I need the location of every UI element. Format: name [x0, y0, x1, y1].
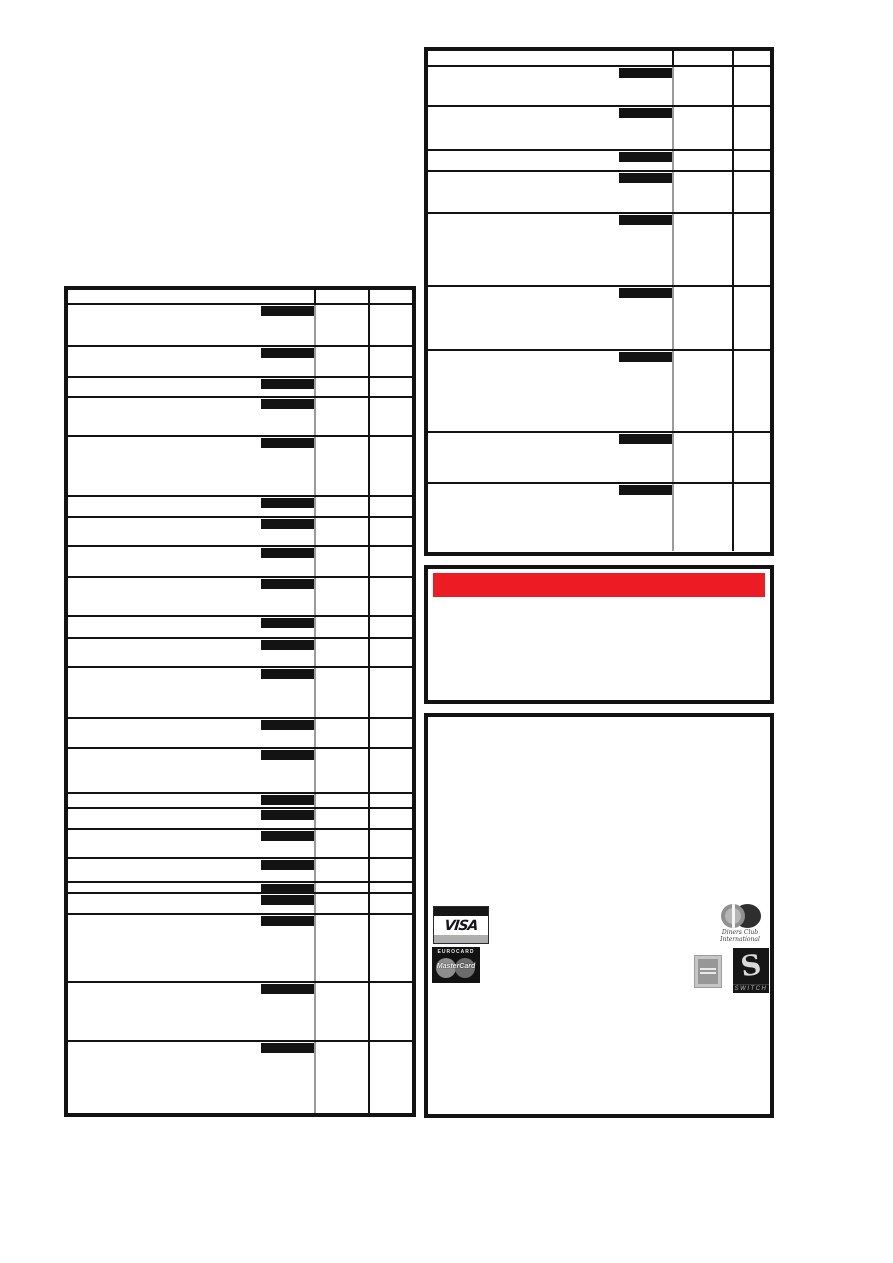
redacted-text-bar — [261, 348, 314, 358]
table-row — [68, 828, 412, 857]
payment-info-box: VISA EUROCARD MasterCard Diners Club Int… — [424, 713, 774, 1118]
table-cell — [370, 894, 412, 913]
table-cell — [370, 547, 412, 576]
redacted-text-bar — [261, 750, 314, 760]
table-cell — [316, 749, 370, 792]
table-cell — [674, 351, 734, 431]
table-cell — [370, 639, 412, 666]
document-page: VISA EUROCARD MasterCard Diners Club Int… — [0, 0, 893, 1263]
table-cell — [68, 290, 316, 303]
table-cell — [316, 883, 370, 892]
redacted-text-bar — [261, 618, 314, 628]
table-row — [68, 345, 412, 376]
table-cell — [68, 347, 316, 376]
table-cell — [316, 437, 370, 495]
table-cell — [316, 668, 370, 717]
table-row — [428, 482, 770, 551]
diners-club-icon — [719, 903, 761, 929]
table-cell — [370, 378, 412, 396]
notice-banner-bar — [433, 573, 765, 597]
table-row — [68, 792, 412, 807]
table-cell — [316, 983, 370, 1040]
redacted-text-bar — [619, 108, 672, 118]
table-cell — [370, 437, 412, 495]
table-cell — [370, 809, 412, 828]
table-cell — [316, 794, 370, 807]
table-cell — [370, 859, 412, 881]
redacted-text-bar — [261, 519, 314, 529]
redacted-text-bar — [261, 1043, 314, 1053]
switch-s-icon: S — [731, 946, 772, 987]
left-price-table — [64, 286, 416, 1117]
table-cell — [370, 915, 412, 981]
table-cell — [734, 172, 770, 212]
table-cell — [370, 1042, 412, 1114]
redacted-text-bar — [261, 720, 314, 730]
table-cell — [316, 1042, 370, 1114]
table-cell — [370, 518, 412, 545]
table-cell — [316, 859, 370, 881]
table-cell — [734, 484, 770, 551]
table-row — [68, 576, 412, 615]
american-express-logo — [694, 955, 722, 988]
table-row — [68, 807, 412, 828]
redacted-text-bar — [619, 288, 672, 298]
visa-top-band — [434, 907, 488, 916]
table-row — [428, 285, 770, 349]
visa-bottom-band — [434, 935, 488, 943]
table-cell — [370, 497, 412, 516]
table-cell — [316, 915, 370, 981]
table-cell — [734, 51, 770, 65]
eurocard-wordmark: EUROCARD — [432, 949, 480, 955]
table-cell — [370, 290, 412, 303]
redacted-text-bar — [261, 669, 314, 679]
redacted-text-bar — [261, 831, 314, 841]
table-row — [68, 881, 412, 892]
redacted-text-bar — [261, 399, 314, 409]
redacted-text-bar — [261, 579, 314, 589]
table-cell — [674, 67, 734, 105]
table-header-row — [68, 290, 412, 303]
table-cell — [68, 305, 316, 345]
table-cell — [316, 830, 370, 857]
table-cell — [674, 484, 734, 551]
table-cell — [370, 347, 412, 376]
table-cell — [316, 347, 370, 376]
table-row — [428, 349, 770, 431]
table-cell — [370, 794, 412, 807]
table-cell — [674, 151, 734, 170]
table-row — [428, 105, 770, 149]
diners-left-circle-icon — [721, 904, 745, 928]
redacted-text-bar — [619, 152, 672, 162]
table-cell — [370, 719, 412, 747]
switch-logo: S SWITCH — [733, 948, 769, 993]
table-cell — [370, 398, 412, 435]
table-cell — [316, 578, 370, 615]
visa-wordmark: VISA — [433, 916, 489, 935]
table-cell — [674, 433, 734, 482]
table-cell — [734, 351, 770, 431]
table-cell — [316, 547, 370, 576]
table-row — [68, 615, 412, 637]
redacted-text-bar — [619, 485, 672, 495]
table-cell — [428, 484, 674, 551]
table-cell — [68, 794, 316, 807]
redacted-text-bar — [619, 173, 672, 183]
table-row — [428, 149, 770, 170]
redacted-text-bar — [261, 795, 314, 805]
table-cell — [68, 518, 316, 545]
table-cell — [428, 287, 674, 349]
redacted-text-bar — [261, 498, 314, 508]
table-row — [68, 717, 412, 747]
table-cell — [68, 1042, 316, 1114]
table-cell — [68, 437, 316, 495]
table-cell — [68, 894, 316, 913]
table-row — [68, 396, 412, 435]
table-cell — [370, 668, 412, 717]
table-cell — [68, 915, 316, 981]
table-cell — [734, 151, 770, 170]
table-cell — [428, 433, 674, 482]
right-price-table — [424, 47, 774, 556]
table-row — [68, 892, 412, 913]
redacted-text-bar — [261, 548, 314, 558]
table-cell — [734, 287, 770, 349]
table-header-row — [428, 51, 770, 65]
table-cell — [316, 639, 370, 666]
table-row — [68, 666, 412, 717]
table-cell — [316, 497, 370, 516]
table-cell — [316, 894, 370, 913]
table-cell — [428, 151, 674, 170]
table-cell — [674, 287, 734, 349]
table-row — [68, 913, 412, 981]
table-cell — [68, 378, 316, 396]
diners-club-wordmark: Diners Club International — [717, 930, 763, 944]
table-row — [68, 545, 412, 576]
table-row — [428, 170, 770, 212]
table-cell — [68, 617, 316, 637]
table-cell — [68, 578, 316, 615]
table-cell — [674, 214, 734, 285]
table-row — [68, 516, 412, 545]
redacted-text-bar — [261, 916, 314, 926]
table-cell — [68, 719, 316, 747]
table-cell — [316, 305, 370, 345]
table-cell — [370, 749, 412, 792]
table-row — [68, 495, 412, 516]
redacted-text-bar — [261, 640, 314, 650]
table-row — [428, 65, 770, 105]
table-cell — [674, 172, 734, 212]
table-cell — [674, 51, 734, 65]
table-cell — [370, 830, 412, 857]
table-cell — [674, 107, 734, 149]
table-cell — [68, 639, 316, 666]
table-cell — [428, 172, 674, 212]
table-cell — [428, 351, 674, 431]
table-row — [68, 857, 412, 881]
redacted-text-bar — [619, 434, 672, 444]
table-cell — [734, 433, 770, 482]
table-cell — [316, 719, 370, 747]
redacted-text-bar — [619, 68, 672, 78]
table-cell — [316, 809, 370, 828]
table-cell — [734, 214, 770, 285]
redacted-text-bar — [261, 379, 314, 389]
table-cell — [428, 107, 674, 149]
redacted-text-bar — [261, 860, 314, 870]
table-cell — [370, 883, 412, 892]
mastercard-wordmark: MasterCard — [432, 963, 480, 970]
table-cell — [734, 107, 770, 149]
table-cell — [370, 578, 412, 615]
table-cell — [68, 859, 316, 881]
table-cell — [370, 983, 412, 1040]
table-cell — [68, 883, 316, 892]
redacted-text-bar — [619, 215, 672, 225]
table-cell — [316, 398, 370, 435]
table-cell — [734, 67, 770, 105]
table-cell — [68, 830, 316, 857]
redacted-text-bar — [261, 438, 314, 448]
table-row — [68, 435, 412, 495]
notice-box — [424, 565, 774, 704]
table-cell — [68, 983, 316, 1040]
visa-logo: VISA — [433, 906, 489, 944]
american-express-icon — [698, 959, 718, 984]
table-cell — [68, 497, 316, 516]
table-row — [68, 303, 412, 345]
table-row — [428, 431, 770, 482]
table-cell — [316, 518, 370, 545]
table-cell — [68, 668, 316, 717]
table-row — [68, 376, 412, 396]
table-cell — [316, 378, 370, 396]
table-cell — [428, 214, 674, 285]
table-cell — [316, 290, 370, 303]
diners-club-logo: Diners Club International — [717, 903, 763, 944]
table-cell — [428, 51, 674, 65]
table-row — [428, 212, 770, 285]
redacted-text-bar — [261, 895, 314, 905]
eurocard-mastercard-logo: EUROCARD MasterCard — [432, 947, 480, 983]
table-row — [68, 747, 412, 792]
table-cell — [370, 305, 412, 345]
redacted-text-bar — [261, 984, 314, 994]
table-row — [68, 981, 412, 1040]
table-row — [68, 637, 412, 666]
redacted-text-bar — [261, 306, 314, 316]
redacted-text-bar — [619, 352, 672, 362]
table-cell — [68, 749, 316, 792]
table-cell — [316, 617, 370, 637]
redacted-text-bar — [261, 884, 314, 894]
table-row — [68, 1040, 412, 1114]
table-cell — [370, 617, 412, 637]
redacted-text-bar — [261, 810, 314, 820]
table-cell — [428, 67, 674, 105]
table-cell — [68, 547, 316, 576]
table-cell — [68, 809, 316, 828]
table-cell — [68, 398, 316, 435]
